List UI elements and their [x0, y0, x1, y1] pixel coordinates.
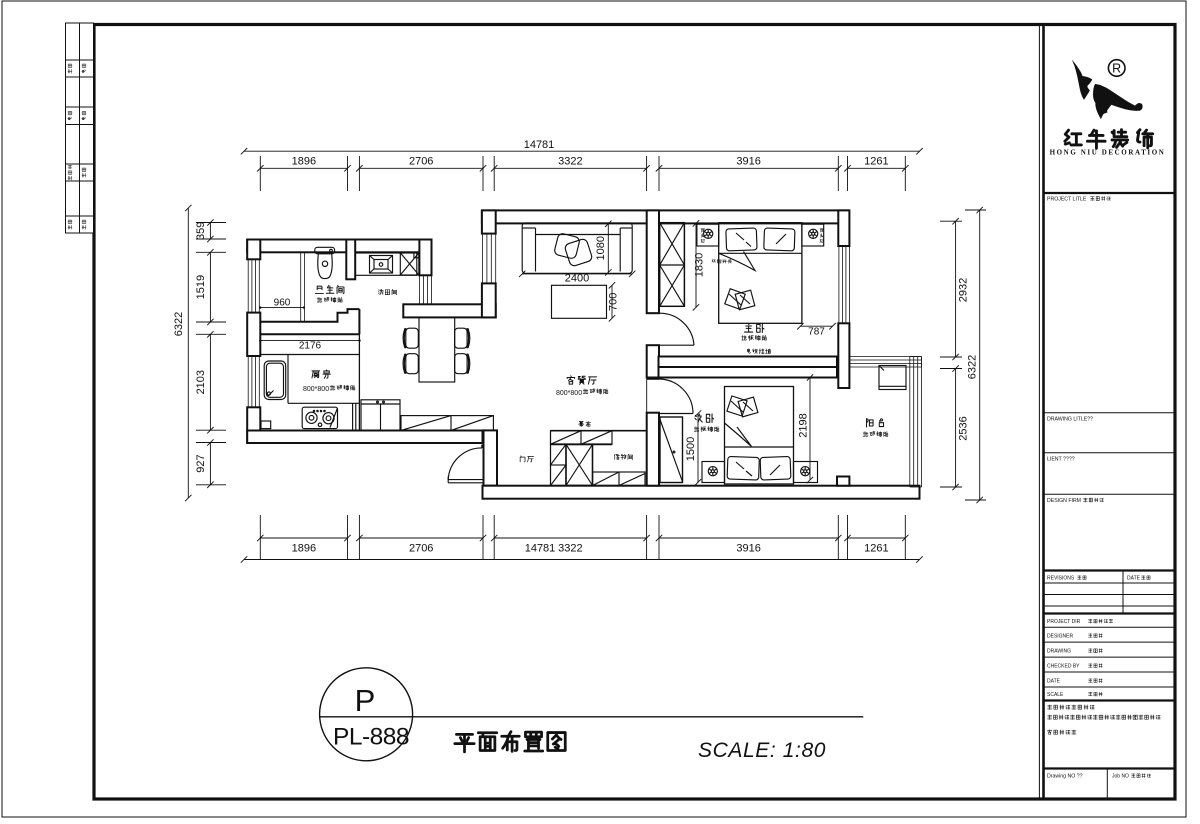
svg-text:1080: 1080	[595, 236, 607, 260]
svg-text:2706: 2706	[409, 156, 433, 168]
svg-text:DRAWING LITLE??: DRAWING LITLE??	[1047, 417, 1093, 423]
svg-text:927: 927	[195, 454, 207, 472]
svg-text:DESIGNER: DESIGNER	[1047, 634, 1074, 640]
svg-text:2198: 2198	[798, 413, 810, 437]
svg-text:R: R	[1112, 62, 1121, 76]
svg-text:3322: 3322	[558, 156, 582, 168]
svg-text:3916: 3916	[736, 156, 760, 168]
svg-text:Drawing NO ??: Drawing NO ??	[1047, 774, 1083, 780]
svg-text:2400: 2400	[565, 273, 589, 285]
svg-text:359: 359	[195, 222, 207, 240]
svg-text:960: 960	[274, 298, 291, 309]
svg-text:DATE: DATE	[1127, 576, 1141, 582]
svg-text:3916: 3916	[736, 543, 760, 555]
svg-text:PL-888: PL-888	[333, 724, 409, 751]
svg-text:2706: 2706	[409, 543, 433, 555]
svg-text:787: 787	[808, 327, 825, 338]
svg-text:1261: 1261	[864, 543, 888, 555]
svg-text:6322: 6322	[967, 355, 979, 379]
svg-text:HONG NIU DECORATION: HONG NIU DECORATION	[1050, 149, 1166, 157]
svg-text:PROJECT LITLE: PROJECT LITLE	[1047, 197, 1087, 203]
svg-text:1261: 1261	[864, 156, 888, 168]
svg-text:DRAWING: DRAWING	[1047, 649, 1071, 655]
svg-text:6322: 6322	[173, 312, 185, 336]
svg-text:SCALE: SCALE	[1047, 692, 1064, 698]
svg-text:14781: 14781	[524, 139, 555, 151]
svg-text:1500: 1500	[685, 437, 697, 461]
svg-text:1896: 1896	[292, 156, 316, 168]
svg-text:3322: 3322	[558, 543, 582, 555]
svg-text:2176: 2176	[299, 341, 322, 352]
svg-text:2932: 2932	[958, 278, 970, 302]
svg-text:1830: 1830	[694, 253, 706, 277]
svg-text:P: P	[355, 683, 376, 718]
svg-text:SCALE: 1:80: SCALE: 1:80	[698, 739, 826, 762]
svg-text:1896: 1896	[292, 543, 316, 555]
svg-text:DESIGN FIRM: DESIGN FIRM	[1047, 498, 1081, 504]
svg-text:700: 700	[608, 293, 620, 311]
svg-text:14781: 14781	[525, 543, 556, 555]
svg-text:REVISIONS: REVISIONS	[1047, 576, 1075, 582]
svg-text:PROJECT DIR: PROJECT DIR	[1047, 619, 1081, 625]
svg-text:800*800: 800*800	[303, 386, 329, 393]
svg-text:CHECKED BY: CHECKED BY	[1047, 664, 1080, 670]
svg-text:Job NO: Job NO	[1112, 774, 1129, 780]
svg-text:2536: 2536	[958, 416, 970, 440]
svg-text:800*800: 800*800	[556, 390, 582, 397]
svg-text:DATE: DATE	[1047, 679, 1061, 685]
svg-text:1519: 1519	[195, 275, 207, 299]
svg-text:LIENT ????: LIENT ????	[1047, 457, 1075, 463]
svg-text:2103: 2103	[195, 370, 207, 394]
